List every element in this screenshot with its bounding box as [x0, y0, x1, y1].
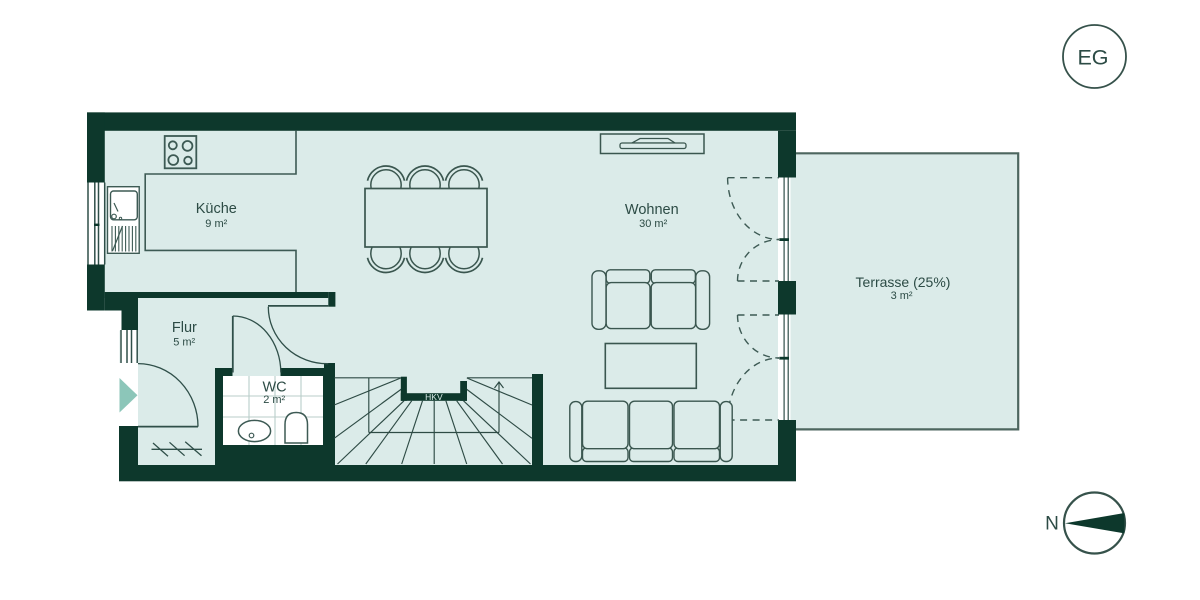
svg-text:EG: EG — [1077, 46, 1108, 70]
svg-text:Terrasse (25%): Terrasse (25%) — [856, 274, 951, 290]
svg-text:HKV: HKV — [425, 392, 443, 402]
svg-text:Wohnen: Wohnen — [625, 202, 679, 218]
svg-text:2 m²: 2 m² — [263, 394, 285, 406]
svg-text:N: N — [1045, 514, 1059, 535]
svg-text:9 m²: 9 m² — [205, 218, 227, 230]
svg-text:5 m²: 5 m² — [173, 337, 195, 349]
svg-text:Flur: Flur — [172, 320, 197, 336]
svg-text:30 m²: 30 m² — [639, 218, 667, 230]
svg-text:WC: WC — [263, 379, 287, 395]
svg-text:Küche: Küche — [196, 201, 237, 217]
svg-text:3 m²: 3 m² — [891, 290, 913, 302]
